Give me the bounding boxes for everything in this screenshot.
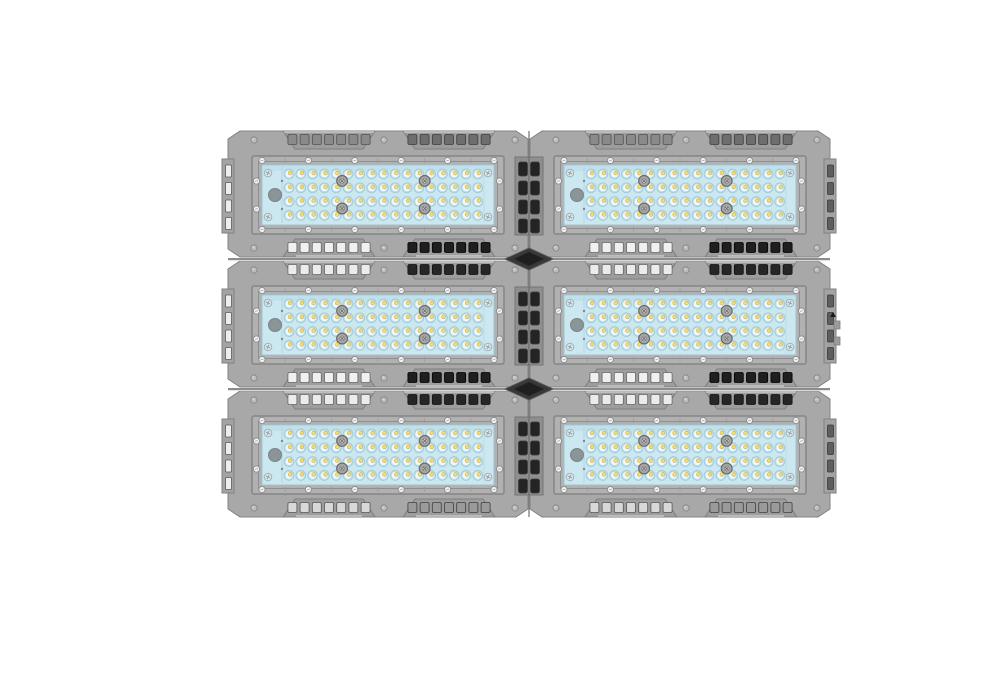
vent-grille: [705, 499, 797, 517]
led: [669, 210, 679, 220]
lens-hex-screw: [639, 176, 650, 187]
lens-corner-screw: [484, 169, 492, 177]
breather-valve: [269, 319, 282, 332]
side-bracket: [824, 289, 840, 363]
vent-slot: [602, 265, 611, 275]
frame-screw: [747, 226, 753, 232]
led: [308, 197, 318, 207]
led: [284, 340, 294, 350]
vent-grille: [585, 369, 677, 387]
vent-slot: [469, 503, 478, 513]
vent-slot: [783, 395, 792, 405]
led: [680, 197, 690, 207]
led: [669, 299, 679, 309]
vent-slot: [663, 135, 672, 145]
led: [657, 210, 667, 220]
lens-corner-screw: [566, 429, 574, 437]
lens-corner-screw: [566, 473, 574, 481]
frame-screw: [793, 287, 799, 293]
led: [610, 340, 620, 350]
led-floodlight-fixture: [0, 0, 1000, 682]
led: [378, 327, 388, 337]
vent-slot: [337, 503, 346, 513]
led: [284, 313, 294, 323]
led: [355, 299, 365, 309]
led: [598, 183, 608, 193]
vent-slot: [602, 503, 611, 513]
frame-screw: [253, 336, 259, 342]
led: [775, 169, 785, 179]
frame-screw: [398, 356, 404, 362]
frame-screw: [259, 356, 265, 362]
bracket-slot: [828, 218, 834, 230]
frame-screw: [352, 287, 358, 293]
led: [610, 313, 620, 323]
led: [775, 327, 785, 337]
vent-slot: [420, 503, 429, 513]
housing-screw: [251, 375, 257, 381]
led: [437, 169, 447, 179]
led: [355, 210, 365, 220]
housing-screw: [683, 245, 689, 251]
vent-slot: [481, 373, 490, 383]
frame-screw: [798, 178, 804, 184]
frame-screw: [259, 226, 265, 232]
led: [692, 443, 702, 453]
bracket-slot: [226, 425, 232, 437]
fin-slot: [531, 162, 540, 176]
led: [437, 429, 447, 439]
heat-sink-channel: [515, 157, 543, 235]
frame-screw: [555, 336, 561, 342]
fin-slot: [531, 460, 540, 474]
vent-slot: [432, 135, 441, 145]
vent-slot: [602, 135, 611, 145]
led: [284, 443, 294, 453]
led: [355, 340, 365, 350]
led: [437, 299, 447, 309]
vent-slot: [408, 503, 417, 513]
led: [402, 299, 412, 309]
vent-slot: [771, 243, 780, 253]
frame-screw: [445, 356, 451, 362]
frame-screw: [305, 157, 311, 163]
frame-screw: [798, 308, 804, 314]
led: [284, 169, 294, 179]
led: [308, 183, 318, 193]
housing-screw: [512, 137, 518, 143]
frame-screw: [555, 178, 561, 184]
led: [319, 457, 329, 467]
fin-slot: [519, 460, 528, 474]
led: [739, 299, 749, 309]
breather-valve: [571, 319, 584, 332]
frame-screw: [253, 308, 259, 314]
frame-screw: [496, 336, 502, 342]
led: [473, 197, 483, 207]
vent-slot: [783, 503, 792, 513]
led: [296, 313, 306, 323]
lens-corner-screw: [786, 169, 794, 177]
vent-slot: [445, 503, 454, 513]
led: [461, 443, 471, 453]
led: [657, 197, 667, 207]
bracket-slot: [828, 443, 834, 455]
vent-grille: [403, 239, 495, 257]
led: [621, 299, 631, 309]
vent-grille: [403, 369, 495, 387]
led: [284, 327, 294, 337]
vent-slot: [337, 265, 346, 275]
bracket-slot: [226, 295, 232, 307]
frame-screw: [491, 417, 497, 423]
frame-screw: [398, 486, 404, 492]
led: [378, 299, 388, 309]
vent-slot: [734, 243, 743, 253]
vent-slot: [288, 243, 297, 253]
vent-slot: [710, 265, 719, 275]
frame-screw: [352, 486, 358, 492]
led: [473, 299, 483, 309]
vent-slot: [710, 373, 719, 383]
led: [449, 299, 459, 309]
led: [598, 327, 608, 337]
frame-screw: [253, 466, 259, 472]
housing-screw: [381, 375, 387, 381]
lens-hex-screw: [337, 176, 348, 187]
frame-screw: [253, 178, 259, 184]
vent-slot: [771, 395, 780, 405]
housing-screw: [553, 505, 559, 511]
led: [355, 327, 365, 337]
vent-slot: [590, 395, 599, 405]
led: [437, 313, 447, 323]
frame-screw: [305, 287, 311, 293]
led: [367, 470, 377, 480]
vent-slot: [639, 373, 648, 383]
frame-screw: [259, 417, 265, 423]
led: [680, 183, 690, 193]
led: [390, 169, 400, 179]
fin-slot: [519, 422, 528, 436]
led: [296, 443, 306, 453]
led: [610, 169, 620, 179]
led: [367, 299, 377, 309]
lens-hex-screw: [419, 306, 430, 317]
vent-slot: [747, 503, 756, 513]
led: [704, 210, 714, 220]
led: [367, 340, 377, 350]
led: [739, 429, 749, 439]
led: [367, 457, 377, 467]
led: [284, 457, 294, 467]
housing-screw: [512, 375, 518, 381]
vent-grille: [283, 391, 375, 409]
fin-slot: [531, 441, 540, 455]
led: [598, 169, 608, 179]
frame-screw: [607, 486, 613, 492]
frame-screw: [352, 417, 358, 423]
vent-slot: [759, 243, 768, 253]
led: [775, 197, 785, 207]
led: [437, 197, 447, 207]
frame-screw: [747, 356, 753, 362]
frame-screw: [491, 486, 497, 492]
vent-slot: [457, 503, 466, 513]
frame-screw: [555, 308, 561, 314]
vent-slot: [722, 243, 731, 253]
led: [751, 169, 761, 179]
frame-screw: [798, 336, 804, 342]
led: [473, 327, 483, 337]
vent-slot: [432, 395, 441, 405]
led: [751, 313, 761, 323]
bracket-slot: [226, 313, 232, 325]
bracket-slot: [226, 478, 232, 490]
breather-valve: [571, 449, 584, 462]
frame-screw: [654, 356, 660, 362]
led: [296, 299, 306, 309]
led: [437, 183, 447, 193]
vent-slot: [747, 373, 756, 383]
housing-screw: [553, 137, 559, 143]
led: [680, 470, 690, 480]
fin-slot: [519, 219, 528, 233]
fin-slot: [519, 181, 528, 195]
led: [319, 197, 329, 207]
led: [621, 197, 631, 207]
led: [378, 197, 388, 207]
led: [367, 210, 377, 220]
vent-slot: [457, 395, 466, 405]
led: [378, 210, 388, 220]
vent-slot: [325, 265, 334, 275]
bracket-slot: [828, 295, 834, 307]
bracket-slot: [828, 425, 834, 437]
led: [692, 429, 702, 439]
led: [704, 470, 714, 480]
led: [449, 340, 459, 350]
vent-slot: [783, 243, 792, 253]
led: [739, 183, 749, 193]
led: [657, 169, 667, 179]
led: [704, 327, 714, 337]
vent-slot: [432, 265, 441, 275]
frame-screw: [607, 356, 613, 362]
vent-slot: [408, 373, 417, 383]
bracket-slot: [828, 183, 834, 195]
vent-slot: [710, 135, 719, 145]
frame-screw: [798, 466, 804, 472]
led: [449, 457, 459, 467]
led: [437, 340, 447, 350]
led: [308, 443, 318, 453]
led: [751, 470, 761, 480]
vent-slot: [288, 265, 297, 275]
frame-screw: [700, 226, 706, 232]
frame-screw: [398, 226, 404, 232]
led: [390, 313, 400, 323]
lens-corner-screw: [786, 213, 794, 221]
led: [296, 183, 306, 193]
led: [621, 183, 631, 193]
led: [378, 169, 388, 179]
fin-slot: [531, 422, 540, 436]
led: [449, 470, 459, 480]
led: [378, 470, 388, 480]
frame-screw: [491, 356, 497, 362]
vent-slot: [627, 395, 636, 405]
led: [692, 210, 702, 220]
heat-sink-channel: [515, 287, 543, 365]
led: [461, 197, 471, 207]
side-bracket: [222, 289, 234, 363]
led: [355, 183, 365, 193]
led: [775, 210, 785, 220]
frame-screw: [445, 157, 451, 163]
vent-slot: [361, 135, 370, 145]
led: [402, 443, 412, 453]
frame-screw: [654, 157, 660, 163]
vent-slot: [614, 373, 623, 383]
vent-slot: [312, 395, 321, 405]
frame-screw: [305, 226, 311, 232]
led: [308, 457, 318, 467]
vent-slot: [337, 135, 346, 145]
vent-grille: [705, 239, 797, 257]
vent-slot: [325, 135, 334, 145]
vent-grille: [403, 391, 495, 409]
led: [308, 470, 318, 480]
led: [296, 457, 306, 467]
led: [449, 313, 459, 323]
frame-screw: [491, 157, 497, 163]
led: [704, 299, 714, 309]
vent-slot: [590, 265, 599, 275]
frame-screw: [352, 356, 358, 362]
vent-slot: [420, 373, 429, 383]
vent-slot: [783, 373, 792, 383]
vent-slot: [408, 265, 417, 275]
fin-slot: [531, 479, 540, 493]
lens-hex-screw: [721, 333, 732, 344]
vent-grille: [283, 369, 375, 387]
vent-slot: [349, 395, 358, 405]
frame-screw: [747, 287, 753, 293]
led: [657, 457, 667, 467]
frame-screw: [445, 287, 451, 293]
led-module: [530, 261, 840, 387]
led: [763, 299, 773, 309]
led: [751, 457, 761, 467]
led: [473, 313, 483, 323]
lens-hex-screw: [639, 306, 650, 317]
lens-corner-screw: [566, 169, 574, 177]
lens-hex-screw: [721, 436, 732, 447]
vent-slot: [325, 395, 334, 405]
frame-screw: [747, 157, 753, 163]
vent-slot: [734, 373, 743, 383]
led: [319, 210, 329, 220]
led: [610, 457, 620, 467]
led: [461, 299, 471, 309]
vent-slot: [361, 395, 370, 405]
led: [763, 340, 773, 350]
led: [763, 313, 773, 323]
vent-grille: [705, 369, 797, 387]
led: [586, 429, 596, 439]
led: [308, 299, 318, 309]
vent-slot: [627, 243, 636, 253]
led: [680, 169, 690, 179]
frame-screw: [445, 226, 451, 232]
led: [402, 183, 412, 193]
led: [378, 429, 388, 439]
vent-grille: [403, 131, 495, 149]
led: [449, 443, 459, 453]
bracket-slot: [226, 165, 232, 177]
vent-slot: [651, 135, 660, 145]
led: [461, 327, 471, 337]
vent-slot: [734, 135, 743, 145]
vent-grille: [283, 261, 375, 279]
frame-screw: [607, 417, 613, 423]
led: [704, 183, 714, 193]
frame-screw: [398, 157, 404, 163]
lens-corner-screw: [264, 343, 272, 351]
vent-slot: [651, 373, 660, 383]
led: [296, 169, 306, 179]
vent-slot: [651, 243, 660, 253]
lens-hex-screw: [419, 176, 430, 187]
vent-slot: [614, 395, 623, 405]
led: [296, 197, 306, 207]
vent-slot: [445, 135, 454, 145]
led: [680, 313, 690, 323]
led: [367, 429, 377, 439]
vent-slot: [325, 373, 334, 383]
vent-slot: [663, 373, 672, 383]
frame-screw: [253, 206, 259, 212]
led: [402, 313, 412, 323]
lens-hex-screw: [419, 436, 430, 447]
led: [775, 429, 785, 439]
led: [739, 313, 749, 323]
vent-slot: [663, 395, 672, 405]
vent-slot: [759, 265, 768, 275]
vent-slot: [614, 503, 623, 513]
vent-slot: [663, 243, 672, 253]
frame-screw: [793, 417, 799, 423]
led: [367, 327, 377, 337]
vent-slot: [420, 135, 429, 145]
led: [598, 299, 608, 309]
led: [657, 470, 667, 480]
bracket-slot: [226, 460, 232, 472]
housing-screw: [381, 397, 387, 403]
frame-screw: [561, 287, 567, 293]
vent-slot: [349, 135, 358, 145]
led: [621, 210, 631, 220]
led: [704, 429, 714, 439]
led: [378, 443, 388, 453]
frame-screw: [700, 486, 706, 492]
led: [367, 313, 377, 323]
vent-slot: [420, 243, 429, 253]
led: [598, 470, 608, 480]
frame-screw: [798, 438, 804, 444]
fin-slot: [519, 200, 528, 214]
